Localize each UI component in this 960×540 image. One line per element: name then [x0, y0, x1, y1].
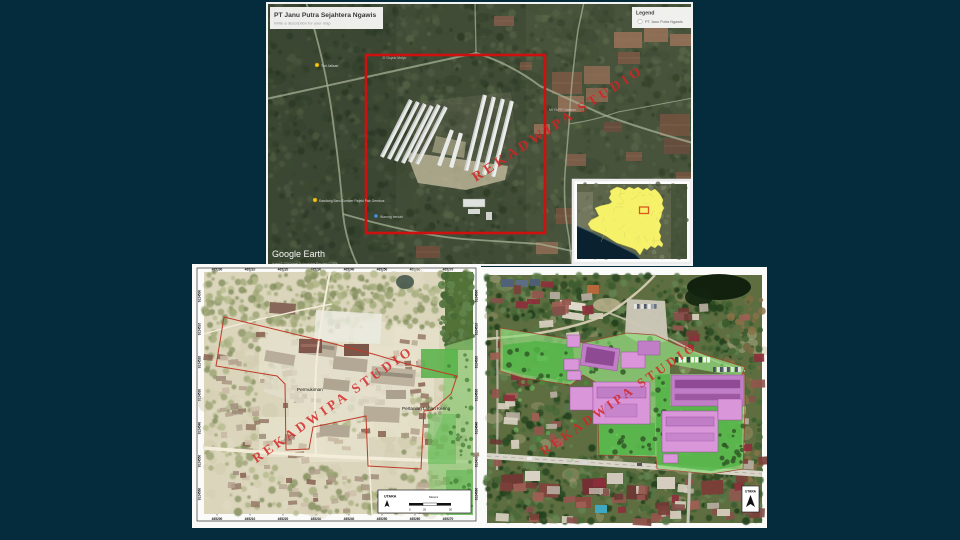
svg-text:Permukiman: Permukiman	[297, 387, 323, 392]
svg-text:465240: 465240	[344, 268, 355, 272]
svg-text:465220: 465220	[278, 268, 289, 272]
svg-text:50: 50	[449, 508, 453, 512]
svg-text:PT Janu Putra Ngawis: PT Janu Putra Ngawis	[645, 20, 683, 24]
svg-text:9124520: 9124520	[198, 356, 202, 369]
svg-text:465270: 465270	[443, 268, 454, 272]
svg-text:Write a description for your m: Write a description for your map	[274, 21, 331, 26]
svg-text:9124560: 9124560	[474, 488, 478, 501]
svg-text:UTARA: UTARA	[745, 490, 757, 494]
svg-text:9124550: 9124550	[198, 455, 202, 468]
svg-text:9124510: 9124510	[474, 323, 478, 336]
svg-text:9124500: 9124500	[198, 290, 202, 303]
svg-text:Google Earth: Google Earth	[272, 249, 325, 259]
svg-text:9124540: 9124540	[198, 422, 202, 435]
svg-text:Pertanian Lahan Kering: Pertanian Lahan Kering	[402, 406, 451, 411]
svg-text:Legend: Legend	[636, 11, 654, 17]
svg-text:465250: 465250	[377, 268, 388, 272]
svg-text:465210: 465210	[245, 517, 256, 521]
svg-text:465220: 465220	[278, 517, 289, 521]
svg-text:PT Janu Putra Sejahtera Ngawis: PT Janu Putra Sejahtera Ngawis	[274, 12, 376, 19]
svg-text:9124510: 9124510	[198, 323, 202, 336]
svg-text:465210: 465210	[245, 268, 256, 272]
svg-text:9124560: 9124560	[198, 488, 202, 501]
svg-text:25: 25	[423, 508, 427, 512]
svg-text:465240: 465240	[344, 517, 355, 521]
svg-text:Jl. Guyub Mulyo: Jl. Guyub Mulyo	[382, 56, 406, 60]
svg-text:9124530: 9124530	[474, 389, 478, 402]
svg-text:9124540: 9124540	[474, 422, 478, 435]
svg-text:9124500: 9124500	[474, 290, 478, 303]
svg-text:9124520: 9124520	[474, 356, 478, 369]
svg-text:465250: 465250	[377, 517, 388, 521]
svg-text:UTARA: UTARA	[384, 495, 397, 499]
svg-text:465260: 465260	[410, 517, 421, 521]
svg-text:465270: 465270	[443, 517, 454, 521]
svg-text:Kandang Baru Sumber Rejeki Pak: Kandang Baru Sumber Rejeki Pak Gembus	[319, 199, 385, 203]
svg-text:465200: 465200	[212, 517, 223, 521]
svg-text:Warung berkah: Warung berkah	[380, 215, 403, 219]
svg-text:Meters: Meters	[429, 495, 439, 499]
svg-text:Turi Jatisari: Turi Jatisari	[321, 64, 339, 68]
